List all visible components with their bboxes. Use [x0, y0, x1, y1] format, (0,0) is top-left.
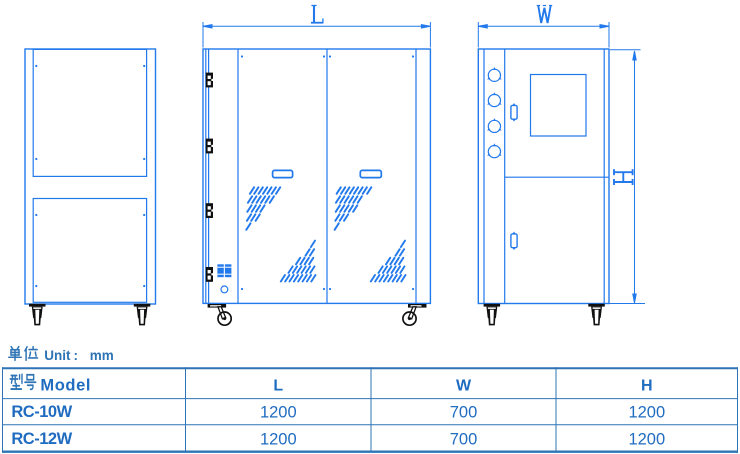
svg-text:1200: 1200: [260, 431, 297, 449]
svg-text:1200: 1200: [628, 431, 665, 449]
svg-text:H: H: [641, 377, 653, 394]
svg-text::: :: [74, 348, 79, 363]
svg-text:Unit: Unit: [44, 348, 71, 363]
svg-text:1200: 1200: [628, 403, 665, 421]
svg-text:1200: 1200: [260, 403, 297, 421]
svg-text:700: 700: [450, 403, 478, 421]
svg-text:RC-12W: RC-12W: [11, 430, 72, 448]
svg-text:W: W: [456, 377, 472, 394]
svg-text:Model: Model: [40, 376, 91, 394]
svg-text:L: L: [273, 377, 283, 394]
svg-text:700: 700: [450, 431, 478, 449]
svg-text:RC-10W: RC-10W: [11, 403, 72, 421]
svg-text:mm: mm: [90, 348, 114, 363]
